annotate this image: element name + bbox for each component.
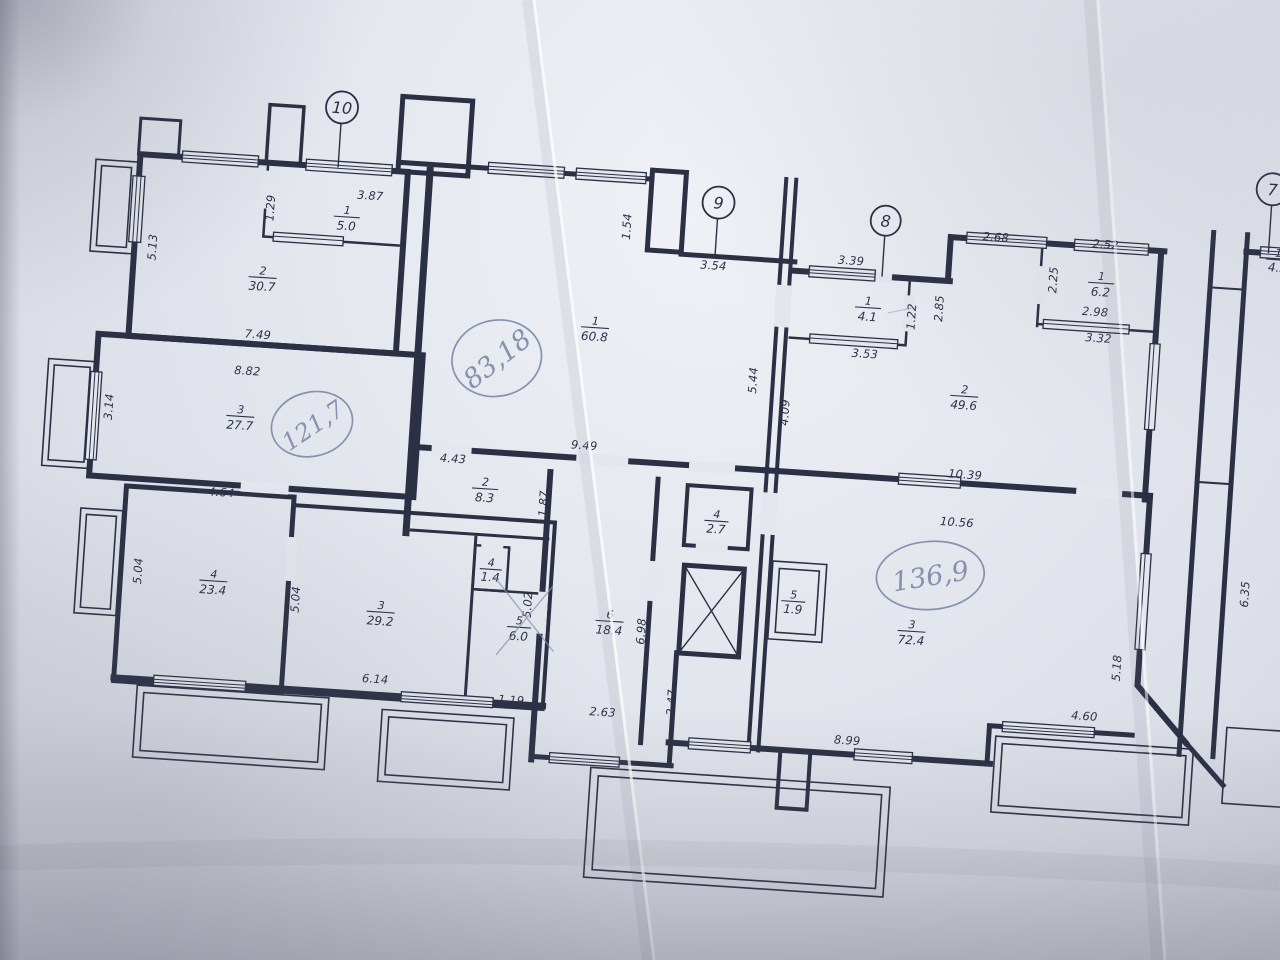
svg-text:4.64: 4.64 [208, 484, 235, 500]
svg-text:9: 9 [713, 193, 724, 213]
window [1002, 722, 1094, 738]
svg-text:4.1: 4.1 [857, 309, 877, 324]
balcony [1222, 727, 1280, 807]
svg-text:72.4: 72.4 [897, 632, 925, 648]
svg-text:49.6: 49.6 [950, 397, 978, 413]
svg-text:1.87: 1.87 [535, 490, 551, 518]
handwritten-note-136-9: 136,9 [870, 530, 992, 620]
svg-text:121,7: 121,7 [277, 394, 350, 456]
section-marker-9: 9 [699, 186, 736, 258]
svg-text:2: 2 [961, 383, 969, 396]
svg-text:136,9: 136,9 [890, 555, 971, 598]
svg-text:2.25: 2.25 [1045, 266, 1061, 293]
window [401, 692, 493, 708]
svg-text:10.39: 10.39 [948, 466, 983, 482]
adjacent-section-walls [1177, 232, 1280, 789]
window [306, 159, 393, 176]
svg-text:5.04: 5.04 [287, 586, 303, 613]
balcony [133, 685, 329, 770]
svg-text:5.13: 5.13 [144, 234, 160, 261]
room-label-3-27-7: 327.7 [225, 402, 255, 433]
room-label-5-1-9: 51.9 [780, 588, 806, 618]
svg-text:2.85: 2.85 [931, 295, 947, 322]
section-marker-10: 10 [322, 90, 359, 168]
svg-text:8.99: 8.99 [834, 732, 861, 748]
room-label-1-4-1: 14.1 [854, 294, 882, 325]
svg-text:3: 3 [377, 599, 385, 612]
dimension-labels: 3.87 1.29 5.13 7.49 8.82 3.14 4.64 5.04 … [82, 172, 1274, 774]
svg-text:1.29: 1.29 [262, 194, 278, 221]
svg-text:10.56: 10.56 [940, 514, 975, 530]
window [273, 232, 343, 246]
svg-text:8.82: 8.82 [234, 363, 261, 379]
svg-text:2: 2 [259, 264, 267, 277]
room-label-4-1-4: 41.4 [479, 556, 503, 585]
svg-text:5.04: 5.04 [130, 557, 146, 584]
room-label-4-2-7: 42.7 [703, 507, 729, 537]
handwritten-note-121-7: 121,7 [260, 378, 363, 470]
svg-text:1: 1 [592, 314, 600, 327]
svg-text:1.54: 1.54 [619, 213, 635, 240]
svg-text:6.35: 6.35 [1237, 581, 1253, 608]
svg-text:3.53: 3.53 [851, 346, 878, 362]
svg-text:1.9: 1.9 [783, 602, 803, 617]
svg-text:10: 10 [331, 98, 353, 118]
room-label-3-72-4: 372.4 [897, 617, 927, 648]
svg-text:5.0: 5.0 [336, 218, 356, 233]
svg-text:5.02: 5.02 [520, 591, 536, 618]
svg-text:4: 4 [210, 568, 218, 581]
svg-text:6.98: 6.98 [633, 618, 649, 645]
room-label-4-23-4: 423.4 [198, 567, 228, 598]
room-label-3-29-2: 329.2 [366, 598, 396, 629]
svg-text:3.87: 3.87 [357, 188, 385, 204]
room-label-1-5-0: 15.0 [333, 203, 361, 234]
svg-text:4.60: 4.60 [1071, 708, 1098, 724]
svg-text:1: 1 [864, 295, 872, 308]
window [809, 266, 876, 281]
svg-text:2.98: 2.98 [1082, 304, 1109, 320]
window [688, 738, 751, 753]
svg-text:29.2: 29.2 [366, 613, 394, 629]
svg-text:7: 7 [1267, 180, 1279, 200]
svg-text:3.14: 3.14 [101, 393, 117, 420]
svg-text:3.54: 3.54 [700, 258, 727, 274]
balcony [991, 736, 1194, 825]
svg-text:60.8: 60.8 [581, 329, 609, 345]
window [153, 675, 245, 691]
floor-plan-drawing: 10 9 8 7 15.0 230.7 327.7 423.4 329.2 28… [0, 0, 1280, 960]
svg-text:3.39: 3.39 [837, 253, 864, 269]
room-label-2-30-7: 230.7 [248, 264, 278, 295]
svg-text:4: 4 [487, 556, 495, 569]
svg-text:23.4: 23.4 [199, 582, 227, 598]
svg-text:7.49: 7.49 [244, 326, 271, 342]
svg-text:8: 8 [880, 211, 891, 231]
room-label-1-60-8: 160.8 [580, 314, 610, 345]
svg-text:4: 4 [713, 508, 721, 521]
svg-text:6.14: 6.14 [362, 671, 389, 687]
room-label-2-49-6: 249.6 [949, 382, 979, 413]
svg-text:4.5: 4.5 [1267, 260, 1280, 275]
svg-text:27.7: 27.7 [226, 417, 254, 433]
svg-text:5: 5 [790, 588, 798, 601]
window [576, 168, 647, 184]
svg-text:2: 2 [482, 476, 490, 489]
svg-text:3: 3 [237, 403, 245, 416]
window [549, 753, 620, 768]
svg-text:2.68: 2.68 [982, 229, 1009, 245]
svg-text:4.43: 4.43 [439, 451, 466, 467]
window [1144, 344, 1160, 430]
svg-text:2.47: 2.47 [663, 688, 679, 716]
svg-text:1: 1 [1275, 247, 1280, 260]
svg-text:1: 1 [343, 204, 351, 217]
balcony [74, 508, 123, 616]
svg-text:30.7: 30.7 [248, 279, 276, 295]
svg-text:5.44: 5.44 [745, 367, 761, 394]
room-label-2-8-3: 28.3 [471, 475, 499, 506]
balcony [377, 709, 513, 790]
handwritten-note-83-18: 83,18 [440, 306, 553, 410]
svg-text:83,18: 83,18 [458, 323, 538, 395]
elevator-shaft [679, 565, 745, 657]
svg-text:4.09: 4.09 [777, 399, 793, 426]
window [85, 371, 102, 460]
svg-text:1.19: 1.19 [498, 692, 525, 708]
window [854, 749, 913, 764]
floor-plan-photo: 10 9 8 7 15.0 230.7 327.7 423.4 329.2 28… [0, 0, 1280, 960]
svg-text:3: 3 [908, 618, 916, 631]
section-marker-7: 7 [1252, 172, 1280, 254]
section-marker-8: 8 [867, 205, 902, 278]
svg-text:5.18: 5.18 [1109, 654, 1125, 681]
svg-text:1.4: 1.4 [480, 570, 500, 585]
svg-text:8.3: 8.3 [474, 490, 494, 505]
balconies [17, 157, 1280, 924]
svg-text:2.7: 2.7 [706, 522, 726, 537]
window [182, 151, 259, 167]
elevator-x-icon [679, 565, 745, 657]
